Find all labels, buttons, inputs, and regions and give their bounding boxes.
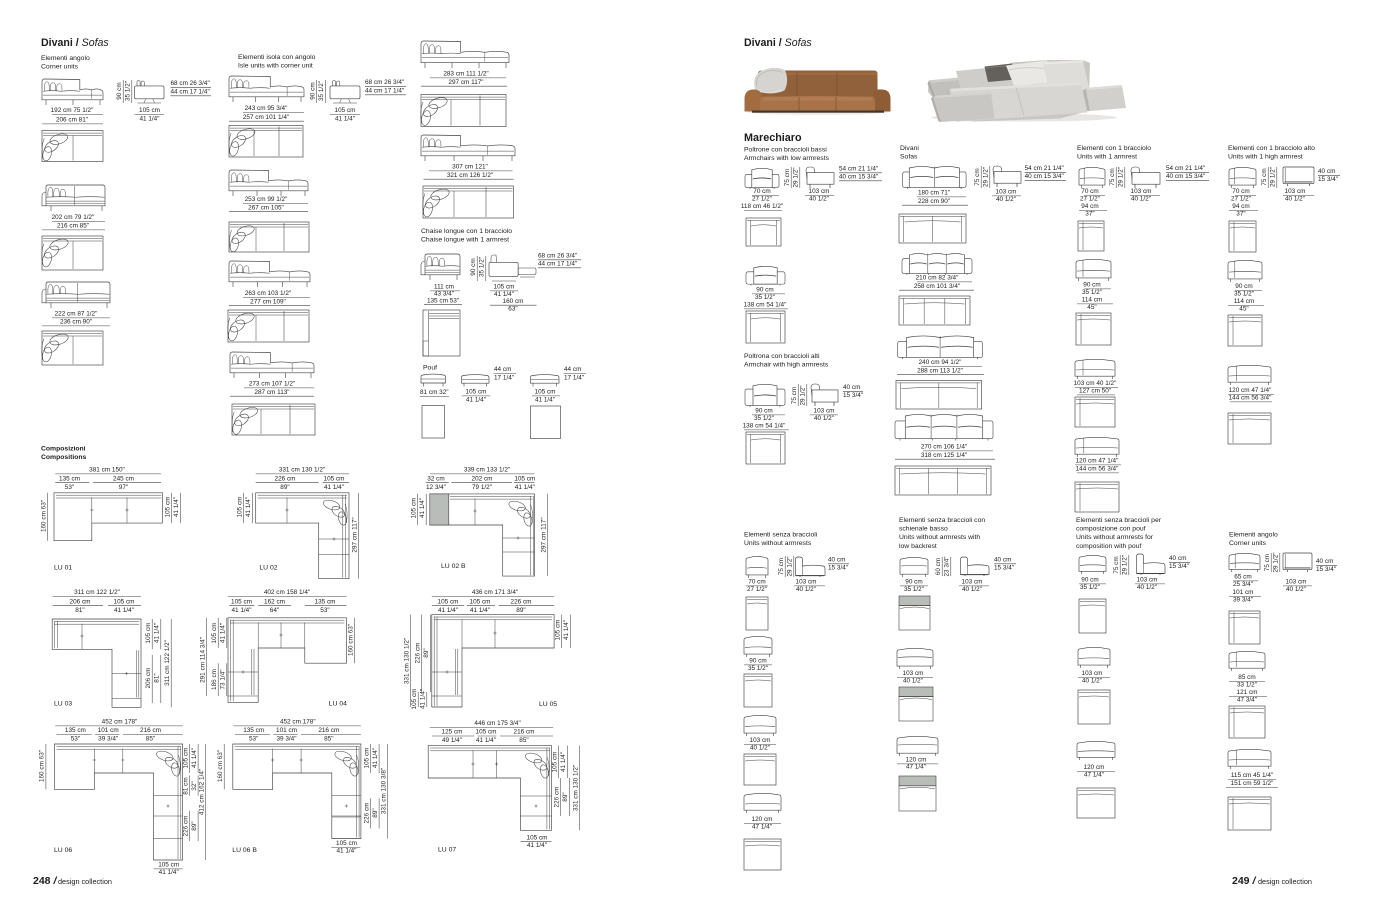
svg-text:15 3/4": 15 3/4"	[843, 392, 863, 399]
svg-text:85": 85"	[519, 737, 528, 744]
svg-text:35 1/2": 35 1/2"	[1082, 289, 1102, 296]
svg-text:LU 02 B: LU 02 B	[441, 563, 466, 570]
svg-text:40 cm 15 3/4": 40 cm 15 3/4"	[1025, 173, 1064, 180]
svg-text:Composizioni: Composizioni	[41, 446, 86, 453]
svg-text:94 cm: 94 cm	[1081, 203, 1098, 210]
svg-text:263 cm 103 1/2": 263 cm 103 1/2"	[245, 290, 291, 297]
svg-text:60 cm: 60 cm	[935, 558, 942, 575]
svg-text:75 cm: 75 cm	[1264, 554, 1271, 571]
svg-text:Poltrona con braccioli alti: Poltrona con braccioli alti	[744, 353, 820, 360]
svg-text:97": 97"	[119, 484, 128, 491]
svg-text:446 cm 175 3/4": 446 cm 175 3/4"	[474, 720, 520, 727]
svg-text:135 cm: 135 cm	[59, 475, 80, 482]
svg-text:41 1/4": 41 1/4"	[438, 607, 458, 614]
svg-text:105 cm: 105 cm	[114, 598, 135, 605]
svg-text:115 cm 45 1/4": 115 cm 45 1/4"	[1231, 772, 1273, 779]
svg-text:75 cm: 75 cm	[784, 169, 791, 186]
svg-text:105 cm: 105 cm	[410, 498, 417, 519]
svg-text:41 1/4": 41 1/4"	[527, 842, 547, 849]
svg-text:101 cm: 101 cm	[98, 727, 119, 734]
svg-text:35 1/2": 35 1/2"	[125, 81, 132, 101]
svg-text:101 cm: 101 cm	[276, 727, 297, 734]
svg-text:118 cm 46 1/2": 118 cm 46 1/2"	[741, 203, 783, 210]
svg-text:70 cm: 70 cm	[748, 579, 765, 586]
svg-text:Elementi senza braccioli con: Elementi senza braccioli con	[899, 517, 985, 524]
svg-text:206 cm 81": 206 cm 81"	[56, 117, 88, 124]
svg-text:90 cm: 90 cm	[116, 82, 123, 99]
svg-text:Divani: Divani	[900, 145, 919, 152]
svg-text:40 cm: 40 cm	[1318, 168, 1335, 175]
svg-text:Elementi senza braccioli per: Elementi senza braccioli per	[1076, 517, 1162, 524]
svg-text:Units without armrests with: Units without armrests with	[899, 534, 980, 541]
svg-text:47 1/4": 47 1/4"	[1084, 772, 1104, 779]
svg-text:40 1/2": 40 1/2"	[1131, 196, 1151, 203]
svg-text:35 1/2": 35 1/2"	[479, 257, 486, 277]
svg-text:111 cm: 111 cm	[434, 284, 454, 291]
svg-text:37": 37"	[1085, 211, 1094, 218]
svg-text:75 cm: 75 cm	[1113, 556, 1120, 573]
svg-text:Units with 1 high armrest: Units with 1 high armrest	[1228, 154, 1303, 161]
svg-text:79 1/2": 79 1/2"	[472, 484, 492, 491]
svg-text:90 cm: 90 cm	[470, 258, 477, 275]
svg-text:Sofas: Sofas	[900, 154, 918, 161]
svg-text:138 cm 54 1/4": 138 cm 54 1/4"	[743, 423, 786, 430]
svg-text:103 cm: 103 cm	[996, 189, 1017, 196]
svg-text:40 1/2": 40 1/2"	[1285, 196, 1305, 203]
svg-text:90 cm: 90 cm	[1081, 577, 1098, 584]
svg-text:63": 63"	[508, 305, 517, 312]
svg-text:105 cm: 105 cm	[335, 107, 356, 114]
svg-text:105 cm: 105 cm	[324, 475, 345, 482]
svg-text:85 cm: 85 cm	[1238, 674, 1255, 681]
svg-text:41 1/4": 41 1/4"	[335, 116, 355, 123]
svg-text:15 3/4": 15 3/4"	[1318, 176, 1338, 183]
svg-text:210 cm 82 3/4": 210 cm 82 3/4"	[916, 275, 959, 282]
svg-text:73 1/4": 73 1/4"	[220, 669, 227, 689]
svg-text:105 cm: 105 cm	[494, 284, 515, 291]
svg-text:41 1/4": 41 1/4"	[466, 397, 486, 404]
svg-text:81 cm 32": 81 cm 32"	[420, 389, 449, 396]
svg-text:297 cm 117": 297 cm 117"	[541, 517, 548, 552]
svg-text:41 1/4": 41 1/4"	[476, 737, 496, 744]
svg-text:Marechiaro: Marechiaro	[744, 132, 802, 144]
svg-text:41 1/4": 41 1/4"	[419, 498, 426, 518]
svg-text:135 cm: 135 cm	[315, 598, 336, 605]
svg-text:40 1/2": 40 1/2"	[814, 415, 834, 422]
svg-text:Corner units: Corner units	[1229, 540, 1267, 547]
svg-text:202 cm 79 1/2": 202 cm 79 1/2"	[52, 214, 95, 221]
svg-text:339 cm 133 1/2": 339 cm 133 1/2"	[464, 467, 510, 474]
svg-text:311 cm 122 1/2": 311 cm 122 1/2"	[164, 640, 171, 686]
svg-text:90 cm: 90 cm	[310, 82, 317, 99]
svg-text:452 cm 178": 452 cm 178"	[280, 719, 316, 726]
svg-text:331 cm 130 1/2": 331 cm 130 1/2"	[279, 467, 325, 474]
svg-text:41 1/4": 41 1/4"	[515, 484, 535, 491]
svg-text:273 cm 107 1/2": 273 cm 107 1/2"	[249, 381, 295, 388]
svg-text:70 cm: 70 cm	[1081, 188, 1098, 195]
svg-text:LU 03: LU 03	[54, 701, 72, 708]
svg-text:103 cm: 103 cm	[1285, 188, 1306, 195]
svg-text:Units without armrests for: Units without armrests for	[1076, 534, 1154, 541]
svg-text:45": 45"	[1239, 306, 1248, 313]
svg-text:32 cm: 32 cm	[427, 475, 444, 482]
svg-text:41 1/4": 41 1/4"	[220, 623, 227, 643]
svg-text:Elementi con 1 bracciolo: Elementi con 1 bracciolo	[1077, 145, 1151, 152]
svg-text:318 cm 125 1/4": 318 cm 125 1/4"	[921, 452, 967, 459]
svg-text:Elementi senza braccioli: Elementi senza braccioli	[744, 532, 818, 539]
svg-text:27 1/2": 27 1/2"	[1231, 196, 1251, 203]
svg-text:LU 07: LU 07	[438, 847, 456, 854]
svg-text:248 /: 248 /	[33, 875, 57, 887]
svg-text:186 cm: 186 cm	[211, 669, 218, 690]
svg-text:297 cm 117": 297 cm 117"	[352, 517, 359, 552]
svg-text:27 1/2": 27 1/2"	[747, 586, 767, 593]
svg-text:40 1/2": 40 1/2"	[796, 586, 816, 593]
svg-text:68 cm 26 3/4": 68 cm 26 3/4"	[171, 80, 210, 87]
svg-text:35 1/2": 35 1/2"	[318, 81, 325, 101]
svg-text:41 1/4": 41 1/4"	[420, 689, 427, 709]
svg-text:41 1/4": 41 1/4"	[336, 848, 356, 855]
svg-text:53": 53"	[71, 736, 80, 743]
svg-text:35 1/2": 35 1/2"	[1234, 291, 1254, 298]
svg-text:311 cm 122 1/2": 311 cm 122 1/2"	[74, 589, 120, 596]
svg-text:44 cm 17 1/4": 44 cm 17 1/4"	[171, 89, 210, 96]
svg-text:29 1/2": 29 1/2"	[800, 385, 807, 405]
svg-text:Elementi angolo: Elementi angolo	[1229, 532, 1278, 539]
svg-text:44 cm: 44 cm	[494, 366, 511, 373]
svg-text:90 cm: 90 cm	[756, 287, 773, 294]
svg-text:160 cm 63": 160 cm 63"	[348, 624, 355, 656]
svg-text:39 3/4": 39 3/4"	[276, 736, 296, 743]
svg-text:90 cm: 90 cm	[749, 658, 766, 665]
svg-text:192 cm 75 1/2": 192 cm 75 1/2"	[51, 107, 94, 114]
svg-text:103 cm: 103 cm	[1137, 577, 1158, 584]
svg-text:103 cm: 103 cm	[1131, 188, 1152, 195]
svg-text:41 1/4": 41 1/4"	[231, 607, 251, 614]
svg-text:40 cm: 40 cm	[994, 557, 1011, 564]
svg-text:29 1/2": 29 1/2"	[787, 556, 794, 576]
svg-text:206 cm: 206 cm	[70, 598, 91, 605]
svg-text:68 cm 26 3/4": 68 cm 26 3/4"	[538, 253, 577, 260]
svg-text:160 cm 63": 160 cm 63"	[39, 750, 46, 782]
svg-text:331 cm 130 3/8": 331 cm 130 3/8"	[381, 768, 388, 814]
svg-text:44 cm 17 1/4": 44 cm 17 1/4"	[365, 88, 404, 95]
svg-text:44 cm 17 1/4": 44 cm 17 1/4"	[538, 261, 577, 268]
svg-text:103 cm: 103 cm	[903, 670, 924, 677]
svg-text:41 1/4": 41 1/4"	[372, 748, 379, 768]
svg-text:277 cm 109": 277 cm 109"	[250, 298, 286, 305]
svg-text:114 cm: 114 cm	[1234, 298, 1254, 305]
svg-text:105 cm: 105 cm	[555, 620, 562, 641]
svg-text:Chaise longue con 1 bracciolo: Chaise longue con 1 bracciolo	[421, 228, 512, 235]
svg-text:160 cm 63": 160 cm 63"	[41, 500, 48, 532]
svg-text:105 cm: 105 cm	[411, 689, 418, 710]
svg-text:226 cm: 226 cm	[511, 598, 532, 605]
svg-text:226 cm: 226 cm	[554, 787, 561, 808]
svg-text:40 1/2": 40 1/2"	[1286, 586, 1306, 593]
svg-text:105 cm: 105 cm	[336, 840, 357, 847]
svg-text:267 cm 105": 267 cm 105"	[248, 204, 284, 211]
svg-text:120 cm: 120 cm	[752, 816, 773, 823]
svg-text:27 1/2": 27 1/2"	[752, 196, 772, 203]
svg-text:41 1/4": 41 1/4"	[139, 116, 159, 123]
svg-text:216 cm: 216 cm	[318, 727, 339, 734]
svg-text:40 cm: 40 cm	[843, 384, 860, 391]
svg-text:45": 45"	[1087, 304, 1096, 311]
svg-text:90 cm: 90 cm	[905, 579, 922, 586]
svg-text:29 1/2": 29 1/2"	[1122, 555, 1129, 575]
svg-text:Pouf: Pouf	[423, 365, 437, 372]
svg-text:307 cm 121": 307 cm 121"	[452, 164, 488, 171]
svg-text:138 cm 54 1/4": 138 cm 54 1/4"	[744, 302, 787, 309]
svg-text:Corner units: Corner units	[41, 64, 79, 71]
svg-text:53": 53"	[65, 484, 74, 491]
svg-text:75 cm: 75 cm	[974, 168, 981, 185]
svg-text:103 cm: 103 cm	[1286, 579, 1307, 586]
svg-text:75 cm: 75 cm	[1109, 168, 1116, 185]
svg-text:121 cm: 121 cm	[1237, 689, 1258, 696]
svg-text:53": 53"	[320, 607, 329, 614]
svg-text:29 1/2": 29 1/2"	[793, 167, 800, 187]
svg-text:85": 85"	[146, 736, 155, 743]
svg-text:40 1/2": 40 1/2"	[750, 745, 770, 752]
svg-text:Elementi isola con angolo: Elementi isola con angolo	[238, 54, 316, 61]
svg-text:105 cm: 105 cm	[145, 623, 152, 644]
svg-text:27 1/2": 27 1/2"	[1080, 196, 1100, 203]
svg-text:283 cm 111 1/2": 283 cm 111 1/2"	[443, 71, 488, 78]
svg-text:Units with 1 armrest: Units with 1 armrest	[1077, 154, 1137, 161]
svg-text:35 1/2": 35 1/2"	[754, 415, 774, 422]
svg-text:Isle units with corner unit: Isle units with corner unit	[238, 63, 313, 70]
svg-text:297 cm 117": 297 cm 117"	[448, 79, 483, 86]
svg-text:125 cm: 125 cm	[442, 729, 463, 736]
svg-text:101 cm: 101 cm	[1233, 589, 1254, 596]
svg-text:41 1/4": 41 1/4"	[173, 497, 180, 517]
svg-text:Chaise longue with 1 armrest: Chaise longue with 1 armrest	[421, 237, 509, 244]
svg-text:LU 04: LU 04	[329, 701, 347, 708]
svg-text:33 1/2": 33 1/2"	[1237, 682, 1257, 689]
svg-text:40 1/2": 40 1/2"	[996, 196, 1016, 203]
svg-text:222 cm 87 1/2": 222 cm 87 1/2"	[55, 311, 98, 318]
svg-text:Units without armrests: Units without armrests	[744, 540, 812, 547]
svg-text:Armchair with high armrests: Armchair with high armrests	[744, 362, 829, 369]
svg-text:412 cm 162 1/4": 412 cm 162 1/4"	[199, 769, 206, 815]
svg-text:LU 06: LU 06	[54, 847, 72, 854]
svg-text:15 3/4": 15 3/4"	[994, 565, 1014, 572]
svg-text:245 cm: 245 cm	[113, 475, 134, 482]
svg-text:162 cm: 162 cm	[264, 598, 285, 605]
svg-text:135 cm 53": 135 cm 53"	[427, 297, 459, 304]
svg-text:105 cm: 105 cm	[363, 748, 370, 769]
svg-text:105 cm: 105 cm	[211, 623, 218, 644]
svg-text:81": 81"	[154, 673, 161, 682]
svg-text:40 1/2": 40 1/2"	[962, 586, 982, 593]
svg-text:236 cm 90": 236 cm 90"	[60, 319, 92, 326]
svg-text:103 cm: 103 cm	[809, 188, 830, 195]
svg-text:240 cm 94 1/2": 240 cm 94 1/2"	[919, 359, 962, 366]
svg-text:120 cm 47 1/4": 120 cm 47 1/4"	[1229, 387, 1272, 394]
svg-text:105 cm: 105 cm	[158, 862, 179, 869]
svg-text:15 3/4": 15 3/4"	[828, 565, 848, 572]
svg-text:47 1/4": 47 1/4"	[752, 824, 772, 831]
svg-text:103 cm 40 1/2": 103 cm 40 1/2"	[1074, 380, 1117, 387]
svg-text:81": 81"	[75, 607, 84, 614]
svg-text:15 3/4": 15 3/4"	[1316, 566, 1336, 573]
svg-text:160 cm 63": 160 cm 63"	[217, 750, 224, 782]
svg-text:schienale basso: schienale basso	[899, 526, 948, 533]
svg-text:120 cm: 120 cm	[1084, 764, 1105, 771]
svg-text:41 1/4": 41 1/4"	[154, 623, 161, 643]
svg-text:114 cm: 114 cm	[1082, 297, 1102, 304]
svg-text:258 cm 101 3/4": 258 cm 101 3/4"	[914, 283, 960, 290]
svg-text:Divani / Sofas: Divani / Sofas	[41, 37, 109, 49]
svg-text:270 cm 106 1/4": 270 cm 106 1/4"	[921, 444, 967, 451]
svg-text:291 cm 114 3/4": 291 cm 114 3/4"	[200, 637, 207, 683]
svg-text:41 1/4": 41 1/4"	[191, 748, 198, 768]
svg-text:17 1/4": 17 1/4"	[564, 375, 584, 382]
svg-text:103 cm: 103 cm	[796, 579, 817, 586]
svg-text:216 cm 85": 216 cm 85"	[57, 223, 89, 230]
svg-text:Armchairs with low armrests: Armchairs with low armrests	[744, 155, 830, 162]
svg-text:144 cm 56 3/4": 144 cm 56 3/4"	[1076, 466, 1119, 473]
svg-text:Divani / Sofas: Divani / Sofas	[744, 37, 812, 49]
svg-text:288 cm 113 1/2": 288 cm 113 1/2"	[917, 367, 963, 374]
svg-text:composizione con pouf: composizione con pouf	[1076, 526, 1146, 533]
svg-text:40 cm 15 3/4": 40 cm 15 3/4"	[839, 174, 878, 181]
svg-text:105 cm: 105 cm	[535, 389, 556, 396]
svg-text:331 cm 130 1/2": 331 cm 130 1/2"	[573, 765, 580, 811]
svg-text:41 1/4": 41 1/4"	[114, 607, 134, 614]
svg-text:103 cm: 103 cm	[962, 579, 983, 586]
svg-text:70 cm: 70 cm	[753, 188, 770, 195]
svg-text:202 cm: 202 cm	[472, 475, 493, 482]
svg-text:44 cm: 44 cm	[564, 366, 581, 373]
svg-text:41 1/4": 41 1/4"	[563, 620, 570, 640]
svg-text:90 cm: 90 cm	[1083, 282, 1100, 289]
svg-text:40 1/2": 40 1/2"	[809, 196, 829, 203]
svg-text:40 cm: 40 cm	[1169, 555, 1186, 562]
svg-text:35 1/2": 35 1/2"	[1080, 584, 1100, 591]
svg-text:228 cm 90": 228 cm 90"	[918, 198, 950, 205]
svg-text:151 cm 59 1/2": 151 cm 59 1/2"	[1231, 780, 1274, 787]
svg-text:29 1/2": 29 1/2"	[983, 167, 990, 187]
svg-text:64": 64"	[270, 607, 279, 614]
svg-text:90 cm: 90 cm	[1235, 283, 1252, 290]
svg-text:89": 89"	[562, 792, 569, 801]
svg-text:144 cm 56 3/4": 144 cm 56 3/4"	[1229, 395, 1272, 402]
svg-text:103 cm: 103 cm	[814, 408, 835, 415]
svg-text:381 cm 150": 381 cm 150"	[89, 467, 125, 474]
svg-text:54 cm 21 1/4": 54 cm 21 1/4"	[1166, 165, 1205, 172]
svg-text:35 1/2": 35 1/2"	[748, 665, 768, 672]
svg-text:70 cm: 70 cm	[1232, 188, 1249, 195]
svg-text:54 cm 21 1/4": 54 cm 21 1/4"	[1025, 165, 1064, 172]
svg-text:89": 89"	[423, 648, 430, 657]
svg-text:75 cm: 75 cm	[791, 387, 798, 404]
svg-text:105 cm: 105 cm	[527, 834, 548, 841]
svg-text:243 cm 95 3/4": 243 cm 95 3/4"	[245, 105, 288, 112]
svg-text:40 1/2": 40 1/2"	[1082, 678, 1102, 685]
svg-text:89": 89"	[280, 484, 289, 491]
svg-text:402 cm 158 1/4": 402 cm 158 1/4"	[264, 589, 310, 596]
svg-text:Elementi angolo: Elementi angolo	[41, 55, 90, 62]
svg-text:LU 05: LU 05	[539, 701, 557, 708]
svg-text:54 cm 21 1/4": 54 cm 21 1/4"	[839, 166, 878, 173]
svg-text:105 cm: 105 cm	[182, 748, 189, 769]
svg-text:composition with pouf: composition with pouf	[1076, 543, 1141, 550]
svg-text:105 cm: 105 cm	[237, 497, 244, 518]
svg-text:53": 53"	[249, 736, 258, 743]
svg-text:436 cm 171 3/4": 436 cm 171 3/4"	[472, 589, 518, 596]
svg-text:226 cm: 226 cm	[275, 475, 296, 482]
svg-text:331 cm 130 1/2": 331 cm 130 1/2"	[404, 638, 411, 684]
svg-text:135 cm: 135 cm	[65, 727, 86, 734]
svg-text:135 cm: 135 cm	[243, 727, 264, 734]
svg-text:29 1/2": 29 1/2"	[1270, 167, 1277, 187]
svg-text:226 cm: 226 cm	[182, 816, 189, 837]
svg-text:105 cm: 105 cm	[470, 598, 491, 605]
svg-text:180 cm 71": 180 cm 71"	[918, 190, 950, 197]
svg-text:32": 32"	[191, 781, 198, 790]
svg-text:LU 06 B: LU 06 B	[232, 847, 257, 854]
svg-text:103 cm: 103 cm	[1082, 670, 1103, 677]
svg-text:105 cm: 105 cm	[466, 389, 487, 396]
svg-text:75 cm: 75 cm	[1261, 168, 1268, 185]
svg-text:127 cm 50": 127 cm 50"	[1079, 388, 1111, 395]
svg-text:85": 85"	[324, 736, 333, 743]
svg-text:206 cm: 206 cm	[145, 668, 152, 689]
svg-text:81 cm: 81 cm	[182, 777, 189, 794]
svg-text:75 cm: 75 cm	[778, 558, 785, 575]
svg-text:LU 02: LU 02	[259, 565, 277, 572]
svg-text:40 cm: 40 cm	[828, 557, 845, 564]
svg-text:226 cm: 226 cm	[415, 643, 422, 664]
svg-text:68 cm 26 3/4": 68 cm 26 3/4"	[365, 79, 404, 86]
svg-text:35 1/2": 35 1/2"	[904, 586, 924, 593]
svg-text:low backrest: low backrest	[899, 543, 937, 550]
svg-text:89": 89"	[372, 808, 379, 817]
svg-text:12 3/4": 12 3/4"	[426, 484, 446, 491]
svg-text:105 cm: 105 cm	[514, 475, 535, 482]
svg-text:Elementi con 1 bracciolo alto: Elementi con 1 bracciolo alto	[1228, 145, 1315, 152]
svg-text:39 3/4": 39 3/4"	[98, 736, 118, 743]
svg-text:40 1/2": 40 1/2"	[903, 678, 923, 685]
svg-text:41 1/4": 41 1/4"	[535, 397, 555, 404]
svg-text:41 1/4": 41 1/4"	[560, 752, 567, 772]
svg-text:89": 89"	[191, 821, 198, 830]
svg-text:41 1/4": 41 1/4"	[324, 484, 344, 491]
svg-text:23 3/4": 23 3/4"	[944, 556, 951, 576]
svg-text:89": 89"	[516, 607, 525, 614]
svg-text:120 cm 47 1/4": 120 cm 47 1/4"	[1076, 458, 1119, 465]
svg-text:41 1/4": 41 1/4"	[245, 497, 252, 517]
svg-text:65 cm: 65 cm	[1234, 574, 1251, 581]
svg-text:452 cm 178": 452 cm 178"	[102, 719, 138, 726]
svg-text:249 /: 249 /	[1232, 875, 1256, 887]
svg-text:49 1/4": 49 1/4"	[442, 737, 462, 744]
svg-text:40 cm 15 3/4": 40 cm 15 3/4"	[1166, 173, 1205, 180]
svg-text:LU 01: LU 01	[54, 565, 72, 572]
svg-text:105 cm: 105 cm	[165, 497, 172, 518]
svg-text:Compositions: Compositions	[41, 454, 87, 461]
svg-text:29 1/2": 29 1/2"	[1118, 167, 1125, 187]
svg-text:120 cm: 120 cm	[906, 757, 927, 764]
svg-text:40 1/2": 40 1/2"	[1137, 584, 1157, 591]
svg-text:94 cm: 94 cm	[1232, 203, 1249, 210]
svg-text:105 cm: 105 cm	[139, 107, 160, 114]
svg-text:47 1/4": 47 1/4"	[906, 764, 926, 771]
svg-text:design collection: design collection	[58, 877, 112, 886]
